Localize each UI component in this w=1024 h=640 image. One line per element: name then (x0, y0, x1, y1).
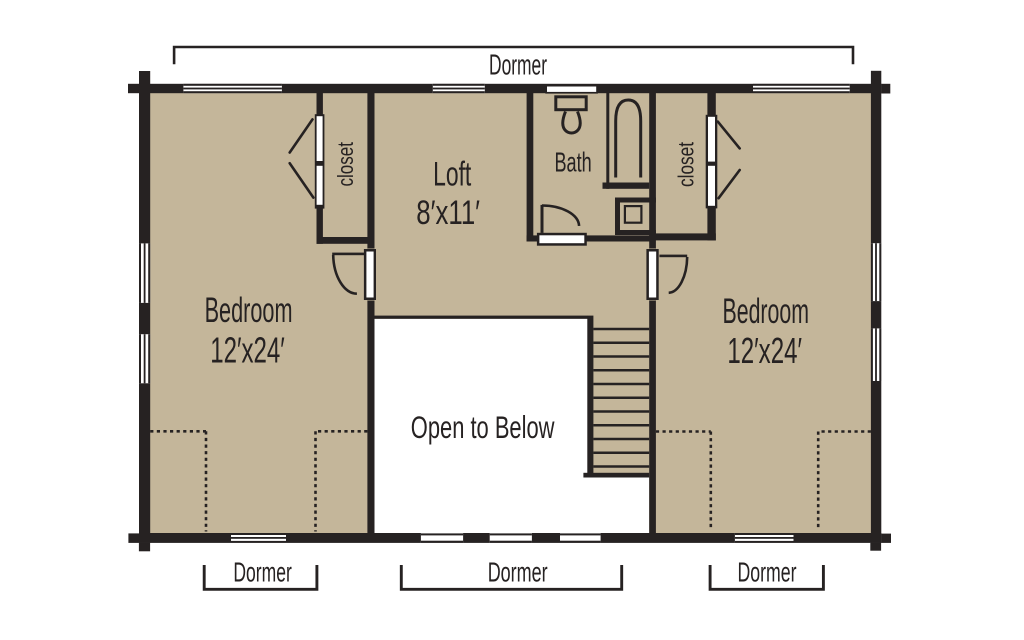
svg-text:12′x24′: 12′x24′ (210, 329, 285, 370)
svg-text:Bath: Bath (555, 147, 592, 178)
svg-text:closet: closet (333, 141, 358, 186)
svg-text:Dormer: Dormer (233, 556, 291, 587)
svg-text:Loft: Loft (433, 156, 472, 194)
svg-text:Dormer: Dormer (738, 556, 797, 587)
svg-text:Dormer: Dormer (489, 50, 547, 82)
svg-text:Bedroom: Bedroom (205, 290, 293, 330)
svg-text:Dormer: Dormer (488, 556, 548, 587)
svg-text:Bedroom: Bedroom (723, 291, 810, 331)
svg-text:8′x11′: 8′x11′ (416, 194, 480, 232)
svg-text:12′x24′: 12′x24′ (727, 330, 802, 371)
svg-text:closet: closet (674, 141, 699, 187)
svg-text:Open to Below: Open to Below (411, 409, 555, 445)
